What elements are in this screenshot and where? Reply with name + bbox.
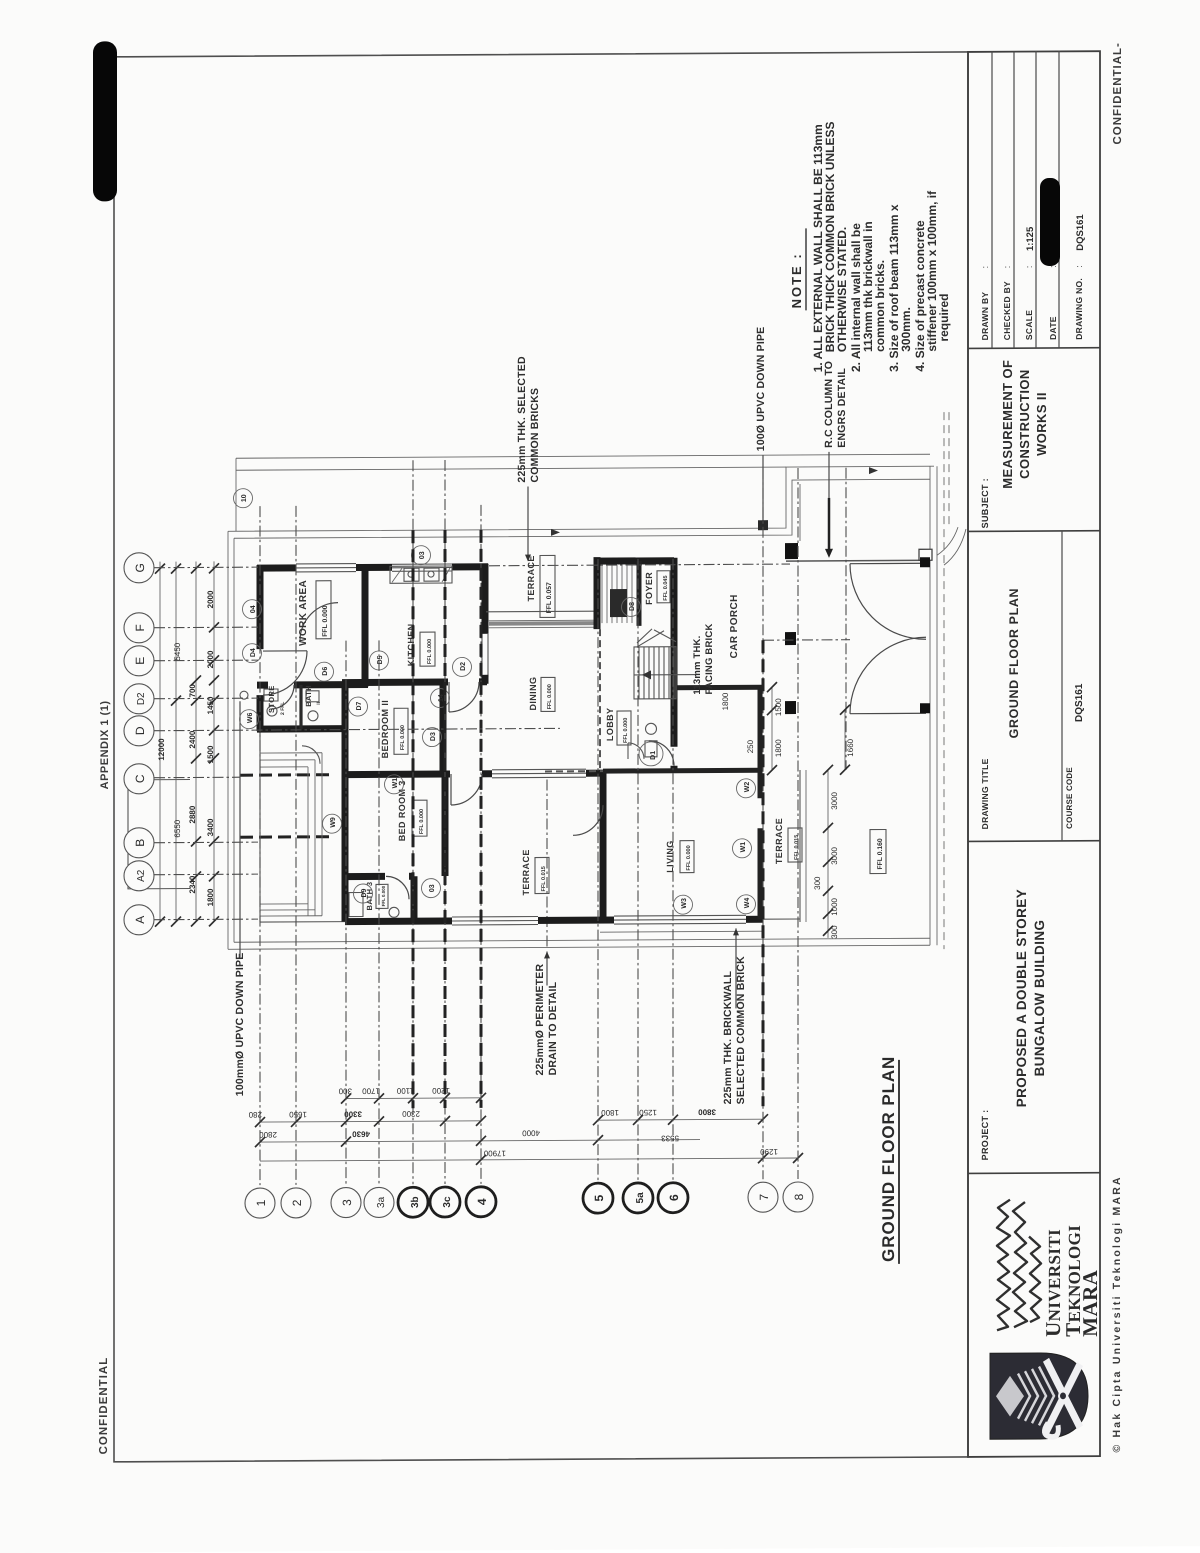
svg-text:W1: W1 bbox=[740, 842, 747, 853]
svg-text:CHECKED BY: CHECKED BY bbox=[1002, 281, 1012, 340]
svg-text:FFL 0.000: FFL 0.000 bbox=[547, 684, 553, 709]
svg-text:03: 03 bbox=[419, 551, 426, 559]
svg-text:COMMON BRICKS: COMMON BRICKS bbox=[529, 388, 541, 483]
svg-text:W3: W3 bbox=[681, 898, 688, 909]
svg-text:STORE: STORE bbox=[267, 685, 276, 713]
svg-text:BATH: BATH bbox=[304, 685, 313, 707]
svg-text:NOTE :: NOTE : bbox=[789, 252, 804, 308]
svg-text:D1: D1 bbox=[650, 751, 657, 760]
svg-text:6: 6 bbox=[667, 1194, 681, 1201]
svg-text:MEASUREMENT OF: MEASUREMENT OF bbox=[1000, 360, 1015, 489]
svg-text:D5: D5 bbox=[377, 655, 384, 664]
svg-text:FFL 0.000: FFL 0.000 bbox=[686, 845, 692, 870]
svg-text:FFL 0.015: FFL 0.015 bbox=[794, 835, 800, 860]
svg-text:FFL 0.160: FFL 0.160 bbox=[877, 838, 884, 869]
svg-text:D8: D8 bbox=[629, 602, 636, 611]
svg-text:1200: 1200 bbox=[432, 1086, 450, 1095]
svg-text:3b: 3b bbox=[410, 1196, 421, 1208]
svg-text:04: 04 bbox=[250, 605, 257, 613]
svg-text:D6: D6 bbox=[322, 667, 329, 676]
svg-text:1660: 1660 bbox=[846, 738, 855, 756]
svg-text:DRAWING NO.: DRAWING NO. bbox=[1074, 278, 1084, 340]
svg-text:100mmØ UPVC DOWN PIPE: 100mmØ UPVC DOWN PIPE bbox=[234, 953, 246, 1097]
svg-text:1000: 1000 bbox=[830, 897, 839, 915]
svg-text:1800: 1800 bbox=[774, 739, 783, 757]
svg-text:CONSTRUCTION: CONSTRUCTION bbox=[1017, 369, 1032, 479]
svg-text:1500: 1500 bbox=[206, 745, 215, 763]
svg-text:225mm THK. SELECTED: 225mm THK. SELECTED bbox=[516, 356, 528, 483]
svg-text:300mm.: 300mm. bbox=[899, 307, 913, 352]
svg-text:100Ø UPVC DOWN PIPE: 100Ø UPVC DOWN PIPE bbox=[755, 327, 767, 452]
svg-text:DQS161: DQS161 bbox=[1075, 214, 1086, 251]
svg-text:5: 5 bbox=[592, 1194, 606, 1201]
svg-text:WORKS II: WORKS II bbox=[1034, 392, 1049, 456]
svg-text:D4: D4 bbox=[250, 648, 257, 657]
svg-text:1800: 1800 bbox=[601, 1108, 619, 1117]
svg-text:17900: 17900 bbox=[483, 1149, 506, 1158]
svg-text:WORK AREA: WORK AREA bbox=[298, 580, 309, 646]
svg-text:2340: 2340 bbox=[188, 875, 197, 893]
svg-text:3a: 3a bbox=[376, 1196, 387, 1208]
svg-text:2800: 2800 bbox=[259, 1130, 277, 1139]
svg-text:3800: 3800 bbox=[698, 1107, 716, 1116]
svg-text:F: F bbox=[133, 624, 147, 631]
svg-text:W4: W4 bbox=[744, 898, 751, 909]
svg-text:FFL 0.015: FFL 0.015 bbox=[541, 866, 547, 891]
svg-text:DRAWN BY: DRAWN BY bbox=[980, 292, 990, 341]
svg-text:ENGRS DETAIL: ENGRS DETAIL bbox=[836, 368, 848, 448]
svg-text:SUBJECT :: SUBJECT : bbox=[980, 478, 990, 528]
svg-text:4: 4 bbox=[475, 1198, 489, 1205]
svg-text:FFL 0.000: FFL 0.000 bbox=[381, 885, 386, 906]
svg-text:1800: 1800 bbox=[206, 888, 215, 906]
svg-text:225mmØ PERIMETER: 225mmØ PERIMETER bbox=[534, 964, 546, 1076]
svg-text:3c: 3c bbox=[442, 1196, 453, 1208]
svg-text:OTHERWISE STATED.: OTHERWISE STATED. bbox=[835, 227, 849, 352]
svg-text:2300: 2300 bbox=[402, 1109, 420, 1118]
svg-text:300: 300 bbox=[830, 925, 839, 939]
svg-text:2 FFL: 2 FFL bbox=[280, 702, 286, 715]
svg-text:CAR PORCH: CAR PORCH bbox=[729, 594, 740, 658]
svg-text:2000: 2000 bbox=[206, 650, 215, 668]
svg-text:UNIVERSITI: UNIVERSITI bbox=[1041, 1229, 1065, 1337]
svg-text:113mm THK.: 113mm THK. bbox=[692, 636, 703, 695]
svg-text:CONFIDENTIAL: CONFIDENTIAL bbox=[98, 1357, 110, 1455]
svg-text:6550: 6550 bbox=[173, 819, 182, 837]
svg-text:4000: 4000 bbox=[522, 1128, 540, 1137]
svg-text:common bricks.: common bricks. bbox=[873, 260, 887, 352]
svg-text:5533: 5533 bbox=[661, 1134, 679, 1143]
svg-text:1:125: 1:125 bbox=[1025, 226, 1036, 251]
svg-text:C: C bbox=[133, 774, 147, 783]
svg-text:1: 1 bbox=[254, 1199, 268, 1206]
svg-text:5450: 5450 bbox=[173, 642, 182, 660]
svg-text:5a: 5a bbox=[635, 1192, 646, 1204]
svg-text:225mm THK. BRICKWALL: 225mm THK. BRICKWALL bbox=[722, 970, 734, 1104]
svg-text::: : bbox=[980, 266, 990, 269]
svg-text:FFL 0.045: FFL 0.045 bbox=[663, 575, 669, 600]
svg-text:1650: 1650 bbox=[289, 1110, 307, 1119]
svg-text:FFL 0.000: FFL 0.000 bbox=[623, 718, 629, 743]
svg-text:GROUND FLOOR PLAN: GROUND FLOOR PLAN bbox=[1007, 588, 1021, 739]
svg-text:CONFIDENTIAL-: CONFIDENTIAL- bbox=[1112, 42, 1124, 145]
svg-text:FFL 0.000: FFL 0.000 bbox=[322, 605, 329, 636]
svg-text:03: 03 bbox=[429, 884, 436, 892]
svg-text:COURSE CODE: COURSE CODE bbox=[1065, 767, 1074, 829]
svg-text:W2: W2 bbox=[744, 782, 751, 793]
svg-text:D7: D7 bbox=[356, 701, 363, 710]
svg-text:D2: D2 bbox=[460, 662, 467, 671]
svg-text::: : bbox=[1074, 265, 1084, 268]
svg-text:APPENDIX 1 (1): APPENDIX 1 (1) bbox=[99, 700, 111, 789]
svg-text:required: required bbox=[937, 294, 951, 342]
svg-text::: : bbox=[1002, 266, 1012, 269]
svg-text:TERRACE: TERRACE bbox=[526, 555, 536, 601]
svg-text:3000: 3000 bbox=[830, 846, 839, 864]
svg-text:DQS161: DQS161 bbox=[1074, 683, 1085, 722]
svg-text:2: 2 bbox=[290, 1199, 304, 1206]
svg-text:1700: 1700 bbox=[362, 1086, 380, 1095]
svg-text:LOBBY: LOBBY bbox=[605, 708, 615, 742]
svg-text:2880: 2880 bbox=[188, 805, 197, 823]
svg-text:DRAIN TO DETAIL: DRAIN TO DETAIL bbox=[547, 981, 559, 1075]
svg-text:2000: 2000 bbox=[206, 590, 215, 608]
svg-text:DRAWING TITLE: DRAWING TITLE bbox=[980, 758, 990, 829]
svg-text:D3: D3 bbox=[430, 732, 437, 741]
svg-text:2400: 2400 bbox=[188, 730, 197, 748]
svg-text:TERRACE: TERRACE bbox=[521, 849, 531, 895]
svg-text:G: G bbox=[133, 563, 147, 572]
svg-text:250: 250 bbox=[746, 739, 755, 753]
svg-text:3: 3 bbox=[340, 1199, 354, 1206]
svg-text:300: 300 bbox=[813, 876, 822, 890]
svg-text:SELECTED COMMON BRICK: SELECTED COMMON BRICK bbox=[735, 956, 747, 1105]
svg-text:R.C COLUMN TO: R.C COLUMN TO bbox=[823, 361, 835, 448]
svg-text:1500: 1500 bbox=[774, 698, 783, 716]
svg-text:1800: 1800 bbox=[721, 692, 730, 710]
svg-text:DATE: DATE bbox=[1048, 316, 1058, 340]
svg-text:300: 300 bbox=[338, 1087, 352, 1096]
svg-text:A2: A2 bbox=[136, 869, 147, 882]
svg-text:GROUND FLOOR PLAN: GROUND FLOOR PLAN bbox=[879, 1056, 898, 1262]
svg-text:1290: 1290 bbox=[760, 1147, 778, 1156]
svg-text:B: B bbox=[133, 839, 147, 847]
svg-text:FACING BRICK: FACING BRICK bbox=[704, 623, 715, 694]
svg-text:3000: 3000 bbox=[830, 791, 839, 809]
svg-text:1100: 1100 bbox=[396, 1086, 414, 1095]
svg-text:FFL 0.000: FFL 0.000 bbox=[419, 809, 425, 834]
svg-text:3400: 3400 bbox=[206, 818, 215, 836]
svg-text::: : bbox=[1024, 266, 1034, 269]
svg-text:8: 8 bbox=[792, 1193, 806, 1200]
svg-text:1250: 1250 bbox=[639, 1108, 657, 1117]
svg-text:FFL 0.000: FFL 0.000 bbox=[427, 639, 433, 664]
svg-text:4630: 4630 bbox=[352, 1129, 370, 1138]
svg-text:W9: W9 bbox=[330, 817, 337, 828]
svg-text:BUNGALOW BUILDING: BUNGALOW BUILDING bbox=[1032, 920, 1047, 1077]
svg-text:PROPOSED A DOUBLE STOREY: PROPOSED A DOUBLE STOREY bbox=[1014, 889, 1029, 1107]
svg-text:D2: D2 bbox=[136, 692, 147, 705]
svg-text:14: 14 bbox=[438, 694, 445, 702]
svg-text:W1: W1 bbox=[392, 778, 399, 789]
svg-text:A: A bbox=[133, 916, 147, 924]
svg-text:W6: W6 bbox=[247, 713, 254, 724]
svg-text:FFL 0.057: FFL 0.057 bbox=[546, 582, 553, 613]
svg-text:FOYER: FOYER bbox=[644, 572, 654, 605]
svg-text:700: 700 bbox=[188, 684, 197, 698]
svg-text:7: 7 bbox=[757, 1194, 771, 1201]
svg-text:SCALE: SCALE bbox=[1024, 310, 1034, 340]
svg-text:DINING: DINING bbox=[528, 677, 538, 711]
svg-text:PROJECT :: PROJECT : bbox=[980, 1110, 990, 1161]
svg-text:12000: 12000 bbox=[157, 738, 166, 761]
svg-text:D: D bbox=[133, 726, 147, 735]
svg-text:TERRACE: TERRACE bbox=[774, 818, 784, 864]
svg-text:© Hak Cipta Universiti Teknolo: © Hak Cipta Universiti Teknologi MARA bbox=[1111, 1175, 1123, 1452]
svg-text:10: 10 bbox=[241, 494, 248, 502]
svg-text:D9: D9 bbox=[361, 888, 368, 897]
svg-text:MARA: MARA bbox=[1078, 1269, 1102, 1336]
svg-text:E: E bbox=[133, 657, 147, 665]
